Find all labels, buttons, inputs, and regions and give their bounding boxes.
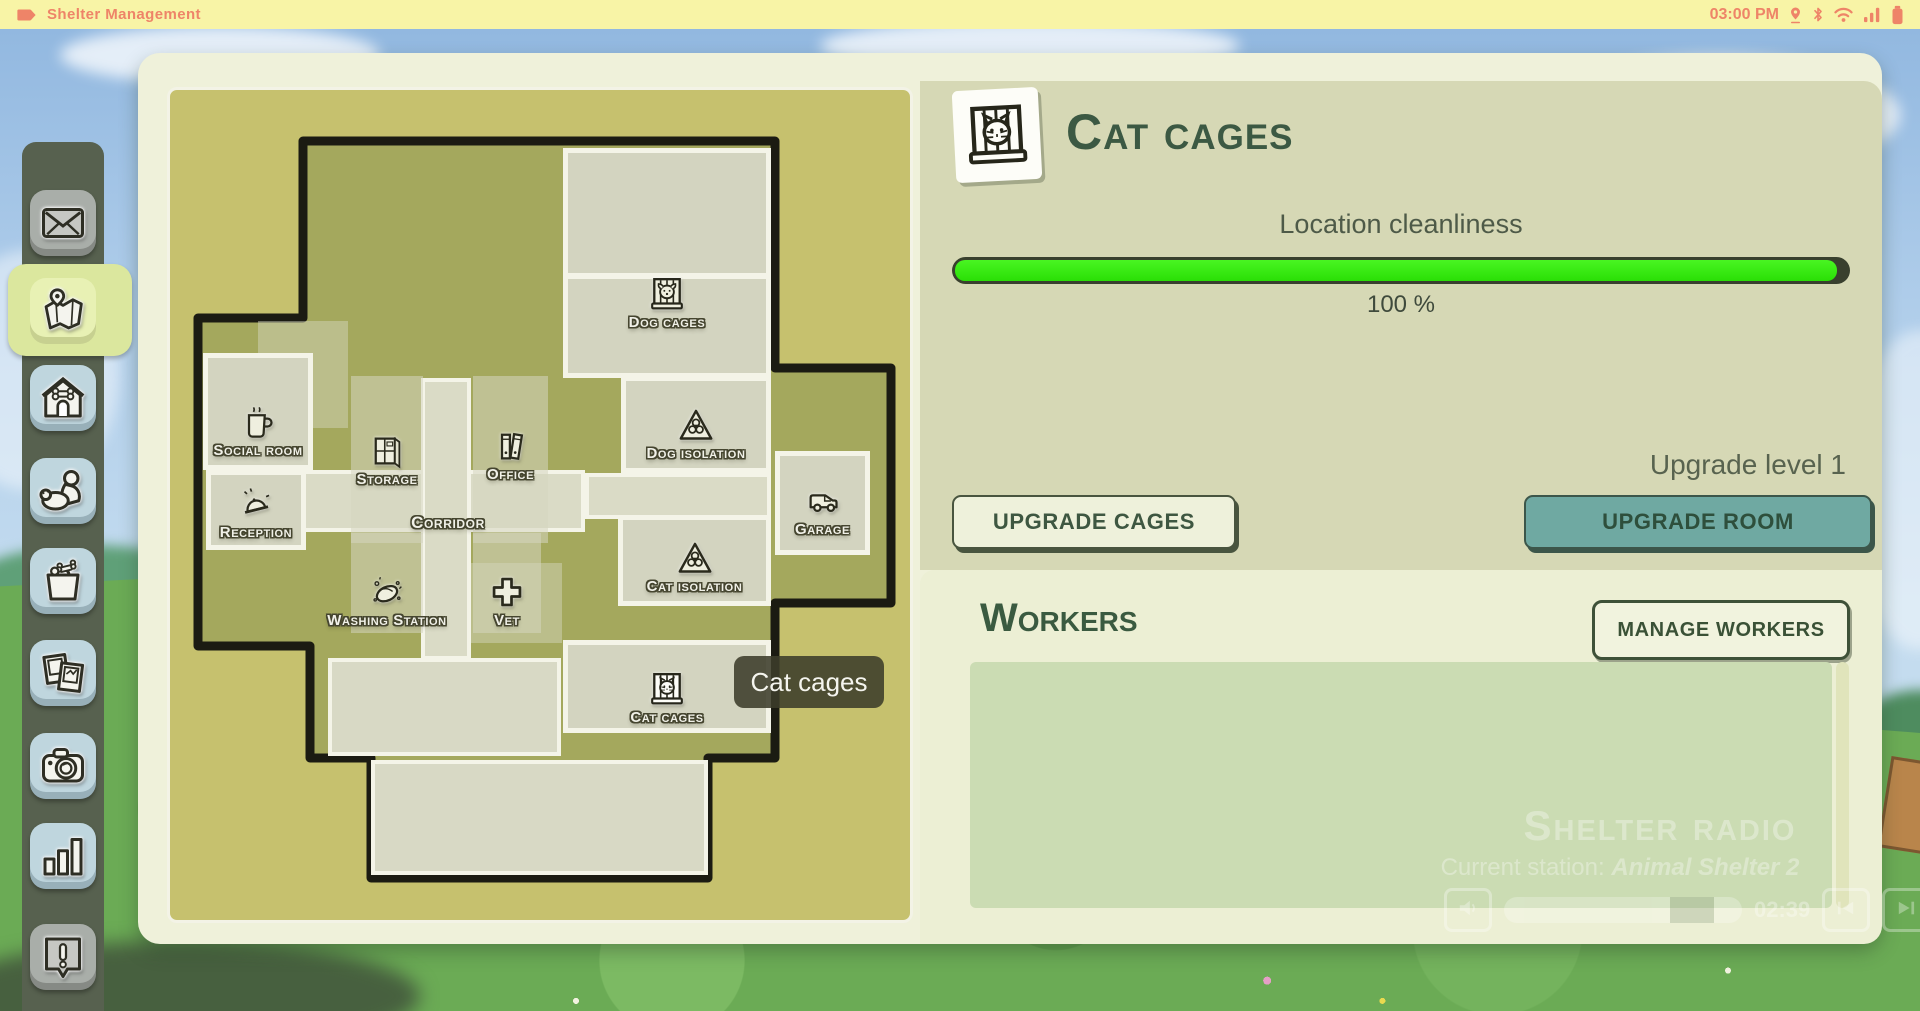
map-room-dog-cages[interactable]: Dog cages (563, 148, 771, 378)
map-room-dog-isolation[interactable]: Dog isolation (621, 376, 771, 473)
map-room-washing-station[interactable]: Washing Station (351, 533, 423, 633)
status-bar: Shelter Management 03:00 PM (0, 0, 1920, 29)
room-label: Vet (494, 612, 520, 629)
workers-list (970, 662, 1832, 908)
shopping-bag-icon (39, 557, 87, 605)
room-label: Social room (213, 442, 302, 459)
map-room-unlabeled (328, 658, 561, 756)
room-label: Cat cages (630, 709, 703, 726)
envelope-icon (39, 199, 87, 247)
bar-chart-icon (39, 832, 87, 880)
doghouse-icon (39, 374, 87, 422)
sidebar-item-shelter[interactable] (30, 365, 96, 431)
binders-icon (493, 428, 529, 464)
room-info-panel: Cat cages Location cleanliness 100 % Upg… (920, 81, 1882, 570)
biohazard-icon (678, 407, 714, 443)
bell-icon (238, 486, 274, 522)
map-room-cat-isolation[interactable]: Cat isolation (618, 515, 771, 606)
map-room-garage[interactable]: Garage (775, 451, 870, 555)
sidebar-item-supplies[interactable] (30, 548, 96, 614)
biohazard-icon (677, 540, 713, 576)
camera-icon (39, 742, 87, 790)
page-title: Cat cages (1066, 103, 1294, 161)
location-icon (1788, 5, 1803, 25)
clock: 03:00 PM (1710, 6, 1779, 24)
upgrade-cages-button[interactable]: UPGRADE CAGES (952, 495, 1236, 549)
room-label: Office (487, 466, 534, 483)
workers-scrollbar[interactable] (1836, 662, 1849, 908)
bluetooth-icon (1812, 5, 1824, 24)
room-label: Dog cages (629, 314, 706, 331)
map-room-vet[interactable]: Vet (473, 533, 541, 633)
cage-cat-icon (962, 100, 1031, 169)
person-dog-icon (39, 467, 87, 515)
map-corridor-east (585, 473, 771, 519)
room-label: Cat isolation (647, 578, 743, 595)
sponge-icon (369, 574, 405, 610)
map-room-social-room[interactable]: Social room (203, 353, 313, 470)
shelf-icon (369, 433, 405, 469)
sidebar-item-stats[interactable] (30, 823, 96, 889)
workers-title: Workers (980, 596, 1138, 641)
sidebar-item-camera[interactable] (30, 733, 96, 799)
battery-icon (1891, 5, 1904, 25)
mug-icon (240, 404, 276, 440)
room-label: Dog isolation (647, 445, 746, 462)
cross-icon (489, 574, 525, 610)
workers-section: Workers MANAGE WORKERS Shelter radio Cur… (920, 570, 1882, 944)
game-screen: Shelter Management 03:00 PM (0, 0, 1920, 1011)
main-panel: Dog cages Social room Storage Office Dog… (138, 53, 1882, 944)
map-icon (39, 287, 87, 335)
cleanliness-fill (955, 260, 1837, 281)
cage-cat-icon (649, 671, 685, 707)
van-icon (805, 483, 841, 519)
sidebar-item-photos[interactable] (30, 640, 96, 706)
sidebar-item-map[interactable] (30, 278, 96, 344)
signal-icon (1863, 6, 1882, 23)
room-label: Reception (220, 524, 292, 541)
room-label: Corridor (411, 513, 485, 533)
room-label: Garage (795, 521, 850, 538)
tag-icon (16, 4, 38, 26)
sidebar-item-animals[interactable] (30, 458, 96, 524)
sidebar-item-alerts[interactable] (30, 924, 96, 990)
shelter-map: Dog cages Social room Storage Office Dog… (167, 87, 913, 923)
alert-icon (39, 933, 87, 981)
room-icon-sticker (952, 87, 1043, 183)
manage-workers-button[interactable]: MANAGE WORKERS (1592, 600, 1850, 660)
cleanliness-bar (952, 257, 1850, 284)
photos-icon (39, 649, 87, 697)
wifi-icon (1833, 6, 1854, 23)
sidebar (22, 142, 104, 1011)
cleanliness-value: 100 % (920, 291, 1882, 319)
room-label: Storage (356, 471, 417, 488)
app-title: Shelter Management (47, 6, 201, 23)
sidebar-item-mail[interactable] (30, 190, 96, 256)
cage-dog-icon (649, 276, 685, 312)
cleanliness-label: Location cleanliness (920, 209, 1882, 240)
upgrade-level-label: Upgrade level 1 (1650, 449, 1846, 481)
map-room-reception[interactable]: Reception (206, 470, 306, 550)
upgrade-room-button[interactable]: UPGRADE ROOM (1524, 495, 1872, 549)
tooltip-cat-cages: Cat cages (734, 656, 884, 708)
room-label: Washing Station (327, 612, 446, 629)
map-room-unlabeled (371, 760, 708, 875)
